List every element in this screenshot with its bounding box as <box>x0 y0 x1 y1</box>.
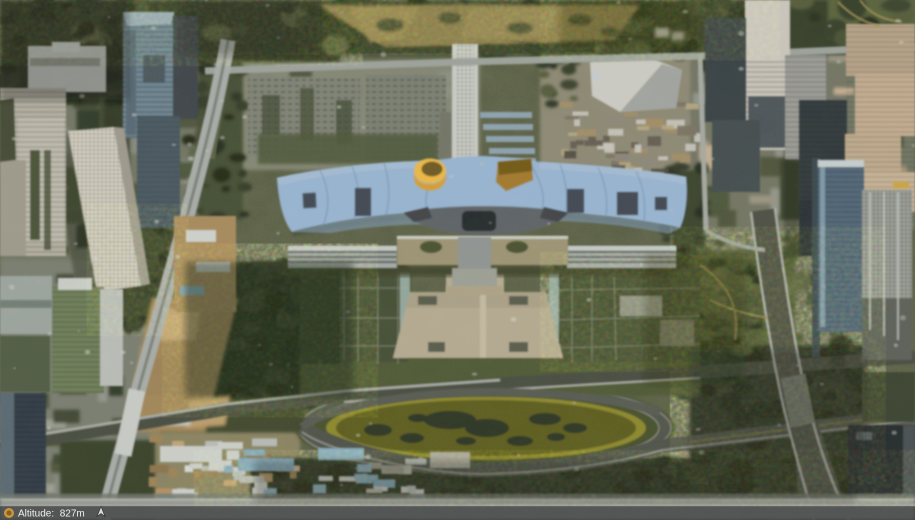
svg-text:Altitude: 827m: Altitude: 827m <box>18 509 85 520</box>
